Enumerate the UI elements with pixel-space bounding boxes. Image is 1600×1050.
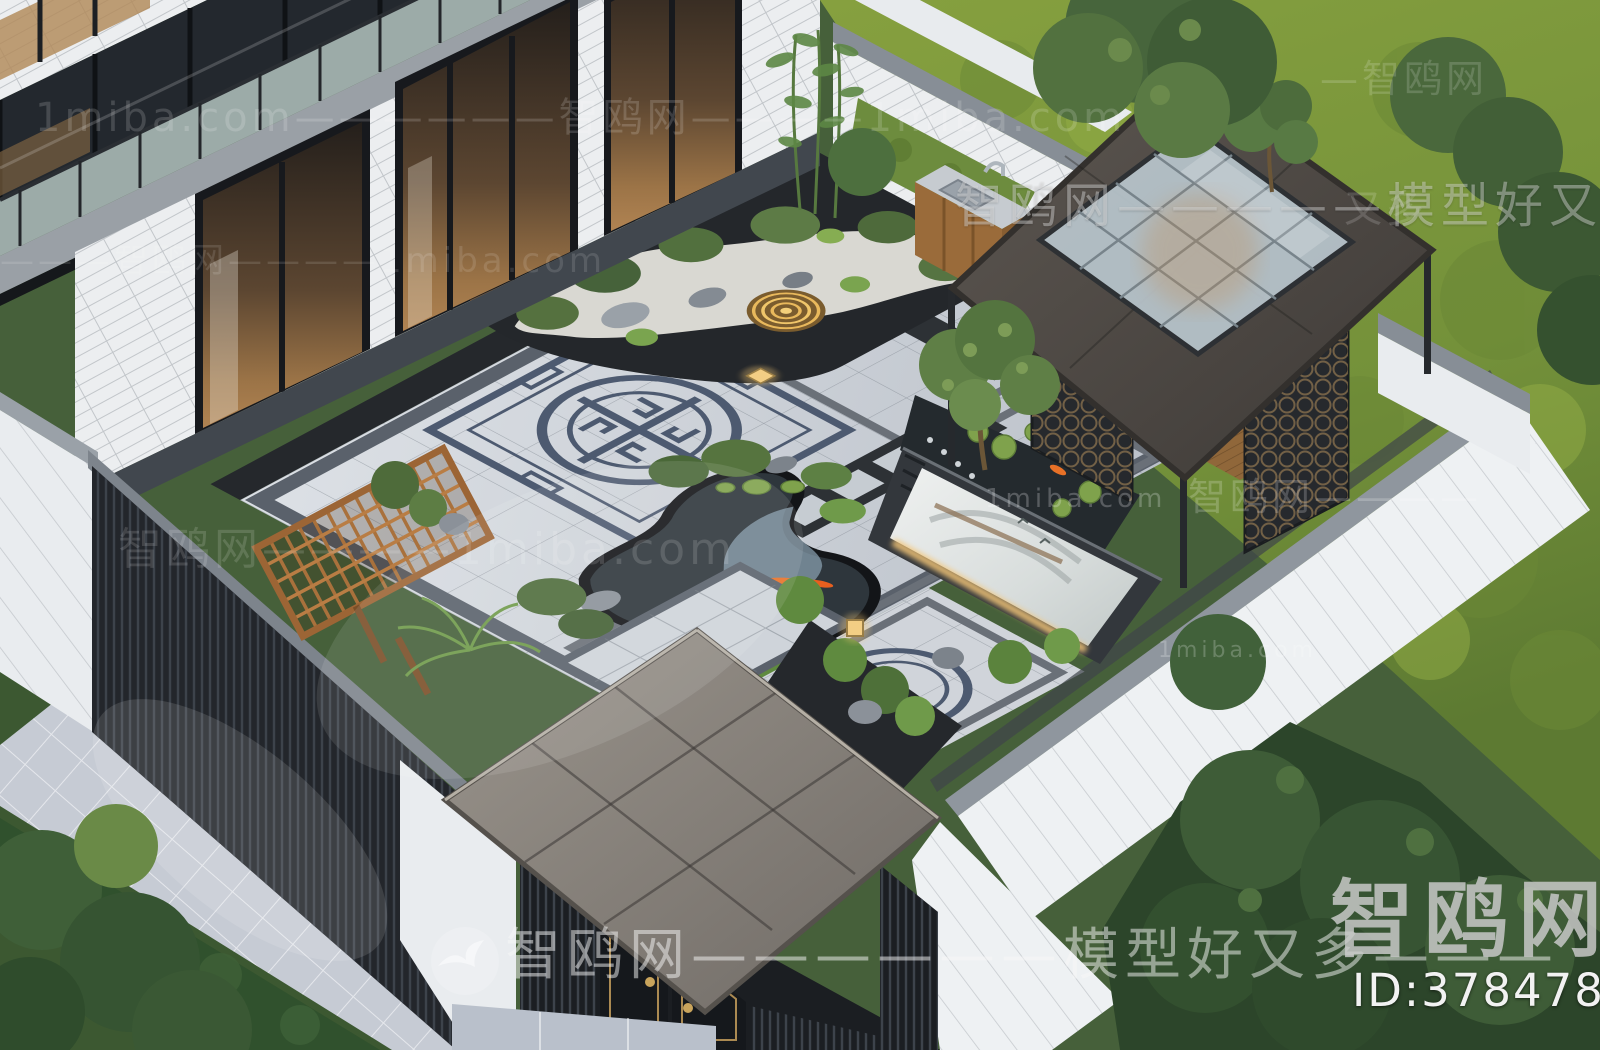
pond-lantern xyxy=(840,613,870,643)
rendering-canvas: 1miba.com——————智鸥网————1miba.com ———智鸥网——… xyxy=(0,0,1600,1050)
seagull-logo-icon xyxy=(428,922,502,1000)
door-handle xyxy=(645,977,655,987)
door-handle xyxy=(683,1003,693,1013)
scene-art xyxy=(0,0,1600,1050)
